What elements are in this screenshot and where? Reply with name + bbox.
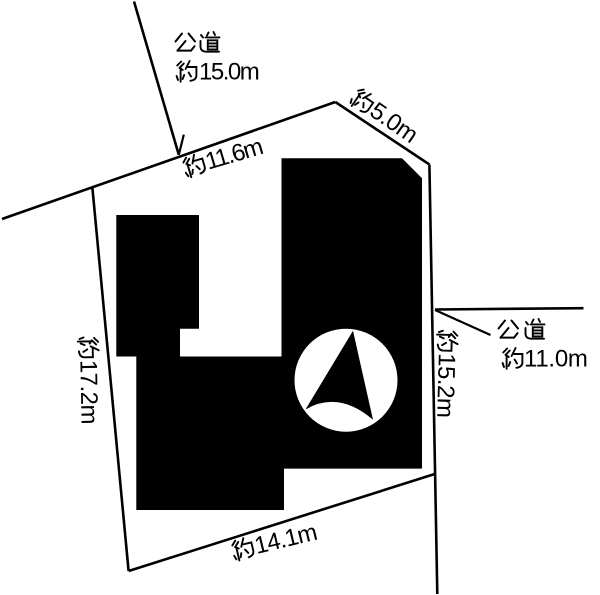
svg-text:11.0m: 11.0m bbox=[524, 346, 588, 373]
svg-text:17.2m: 17.2m bbox=[74, 360, 102, 425]
svg-text:15.0m: 15.0m bbox=[199, 59, 259, 86]
svg-text:15.2m: 15.2m bbox=[431, 353, 460, 418]
svg-text:14.1m: 14.1m bbox=[252, 519, 320, 560]
svg-text:11.6m: 11.6m bbox=[202, 133, 265, 175]
